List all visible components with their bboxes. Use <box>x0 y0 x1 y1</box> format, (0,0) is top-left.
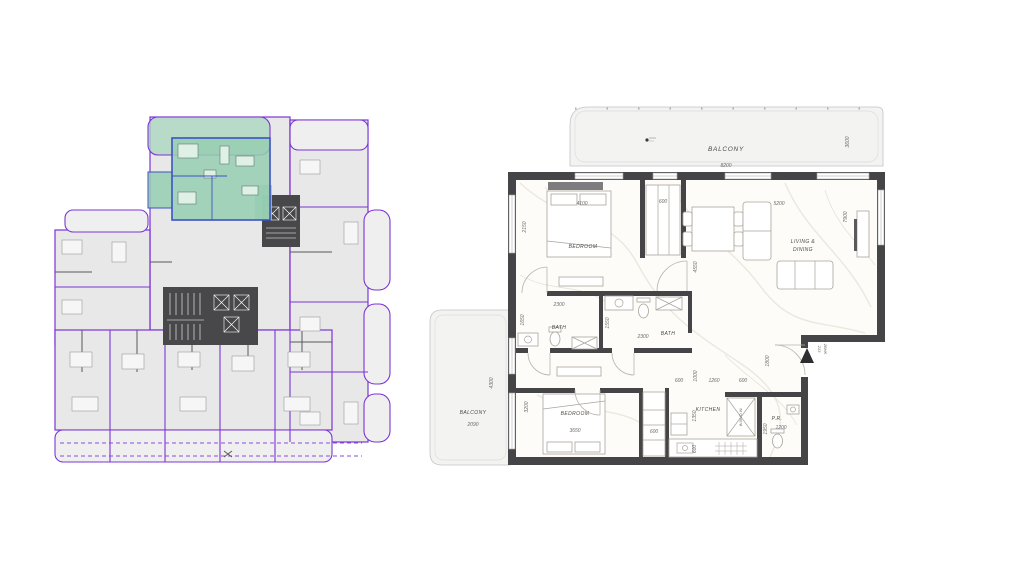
bedroom1-label: BEDROOM <box>569 244 598 250</box>
entry-unit-number: 213 <box>817 345 822 353</box>
bedroom2-width-dim: 3650 <box>569 428 580 434</box>
bath1-depth-dim: 1650 <box>520 314 526 325</box>
balcony-side-width-dim: 2090 <box>466 422 478 428</box>
kitchen-counter-dim: 600 <box>692 445 698 454</box>
bedroom2-label: BEDROOM <box>561 411 590 417</box>
key-plan-core-stairs <box>163 287 258 345</box>
bath2-label: BATH <box>661 331 676 337</box>
vanity <box>518 333 538 346</box>
powder-label: P.R. <box>772 416 783 422</box>
kitchen-depth-dim: 1350 <box>692 410 698 421</box>
balcony-side: BALCONY 2090 4300 <box>430 310 510 465</box>
bath1-label: BATH <box>552 325 567 331</box>
tv <box>854 219 857 251</box>
bench <box>559 277 603 286</box>
washer-label: W.M./D.W. <box>738 407 743 426</box>
living-width-dim: 5200 <box>773 201 784 207</box>
toilet-tank <box>637 298 650 302</box>
living-side-dim: 7900 <box>843 211 849 222</box>
living-depth-dim: 4550 <box>693 261 699 272</box>
hall-dim-1: 600 <box>675 378 684 384</box>
balcony-side-label: BALCONY <box>460 410 487 416</box>
toilet <box>773 434 783 448</box>
wardrobe <box>548 182 603 190</box>
bath2-mid-dim: 1550 <box>605 317 611 328</box>
hall-dim-4: 600 <box>739 378 748 384</box>
entry-depth-dim: 1800 <box>765 355 771 366</box>
floorplan-sheet: BALCONY 8200 3600 BALCONY 2090 4300 <box>0 0 1024 576</box>
entry-unit-type: 2BHK <box>823 343 828 355</box>
bath1-width-dim: 2300 <box>552 302 564 308</box>
powder-width-dim: 1200 <box>775 425 786 431</box>
dining-table <box>692 207 734 251</box>
balcony-top-depth-dim: 3600 <box>845 136 851 147</box>
living-label-1: LIVING & <box>791 239 816 245</box>
closet-2: 600 <box>643 392 665 456</box>
toilet <box>550 332 560 346</box>
sink <box>787 405 799 414</box>
bench <box>557 367 601 376</box>
vanity <box>605 296 633 310</box>
bath2-width-dim: 2300 <box>636 334 648 340</box>
balcony-top-label: BALCONY <box>708 146 744 153</box>
bedroom1-depth-dim: 2150 <box>522 221 528 233</box>
toilet <box>639 304 649 318</box>
balcony-side-depth-dim: 4300 <box>489 377 495 388</box>
detail-plan: BALCONY 8200 3600 BALCONY 2090 4300 <box>425 95 920 480</box>
powder-depth-dim: 1950 <box>763 423 769 434</box>
kitchen-label: KITCHEN <box>696 407 721 413</box>
tv-console <box>857 211 869 257</box>
balcony-top: BALCONY 8200 3600 <box>570 107 883 169</box>
closet-1: 600 <box>646 185 680 255</box>
living-label-2: DINING <box>793 247 813 253</box>
hall-dim-2: 1000 <box>693 370 699 381</box>
sofa <box>777 261 833 289</box>
bedroom1-width-dim: 4100 <box>576 201 587 207</box>
hall-dim-3: 1260 <box>708 378 719 384</box>
closet2-dim: 600 <box>650 429 659 435</box>
key-plan <box>52 112 392 464</box>
bedroom2-depth-dim: 3200 <box>524 401 530 412</box>
entry-arrow-icon <box>800 348 814 363</box>
closet1-dim: 600 <box>659 199 668 205</box>
balcony-top-width-dim: 8200 <box>720 163 731 169</box>
